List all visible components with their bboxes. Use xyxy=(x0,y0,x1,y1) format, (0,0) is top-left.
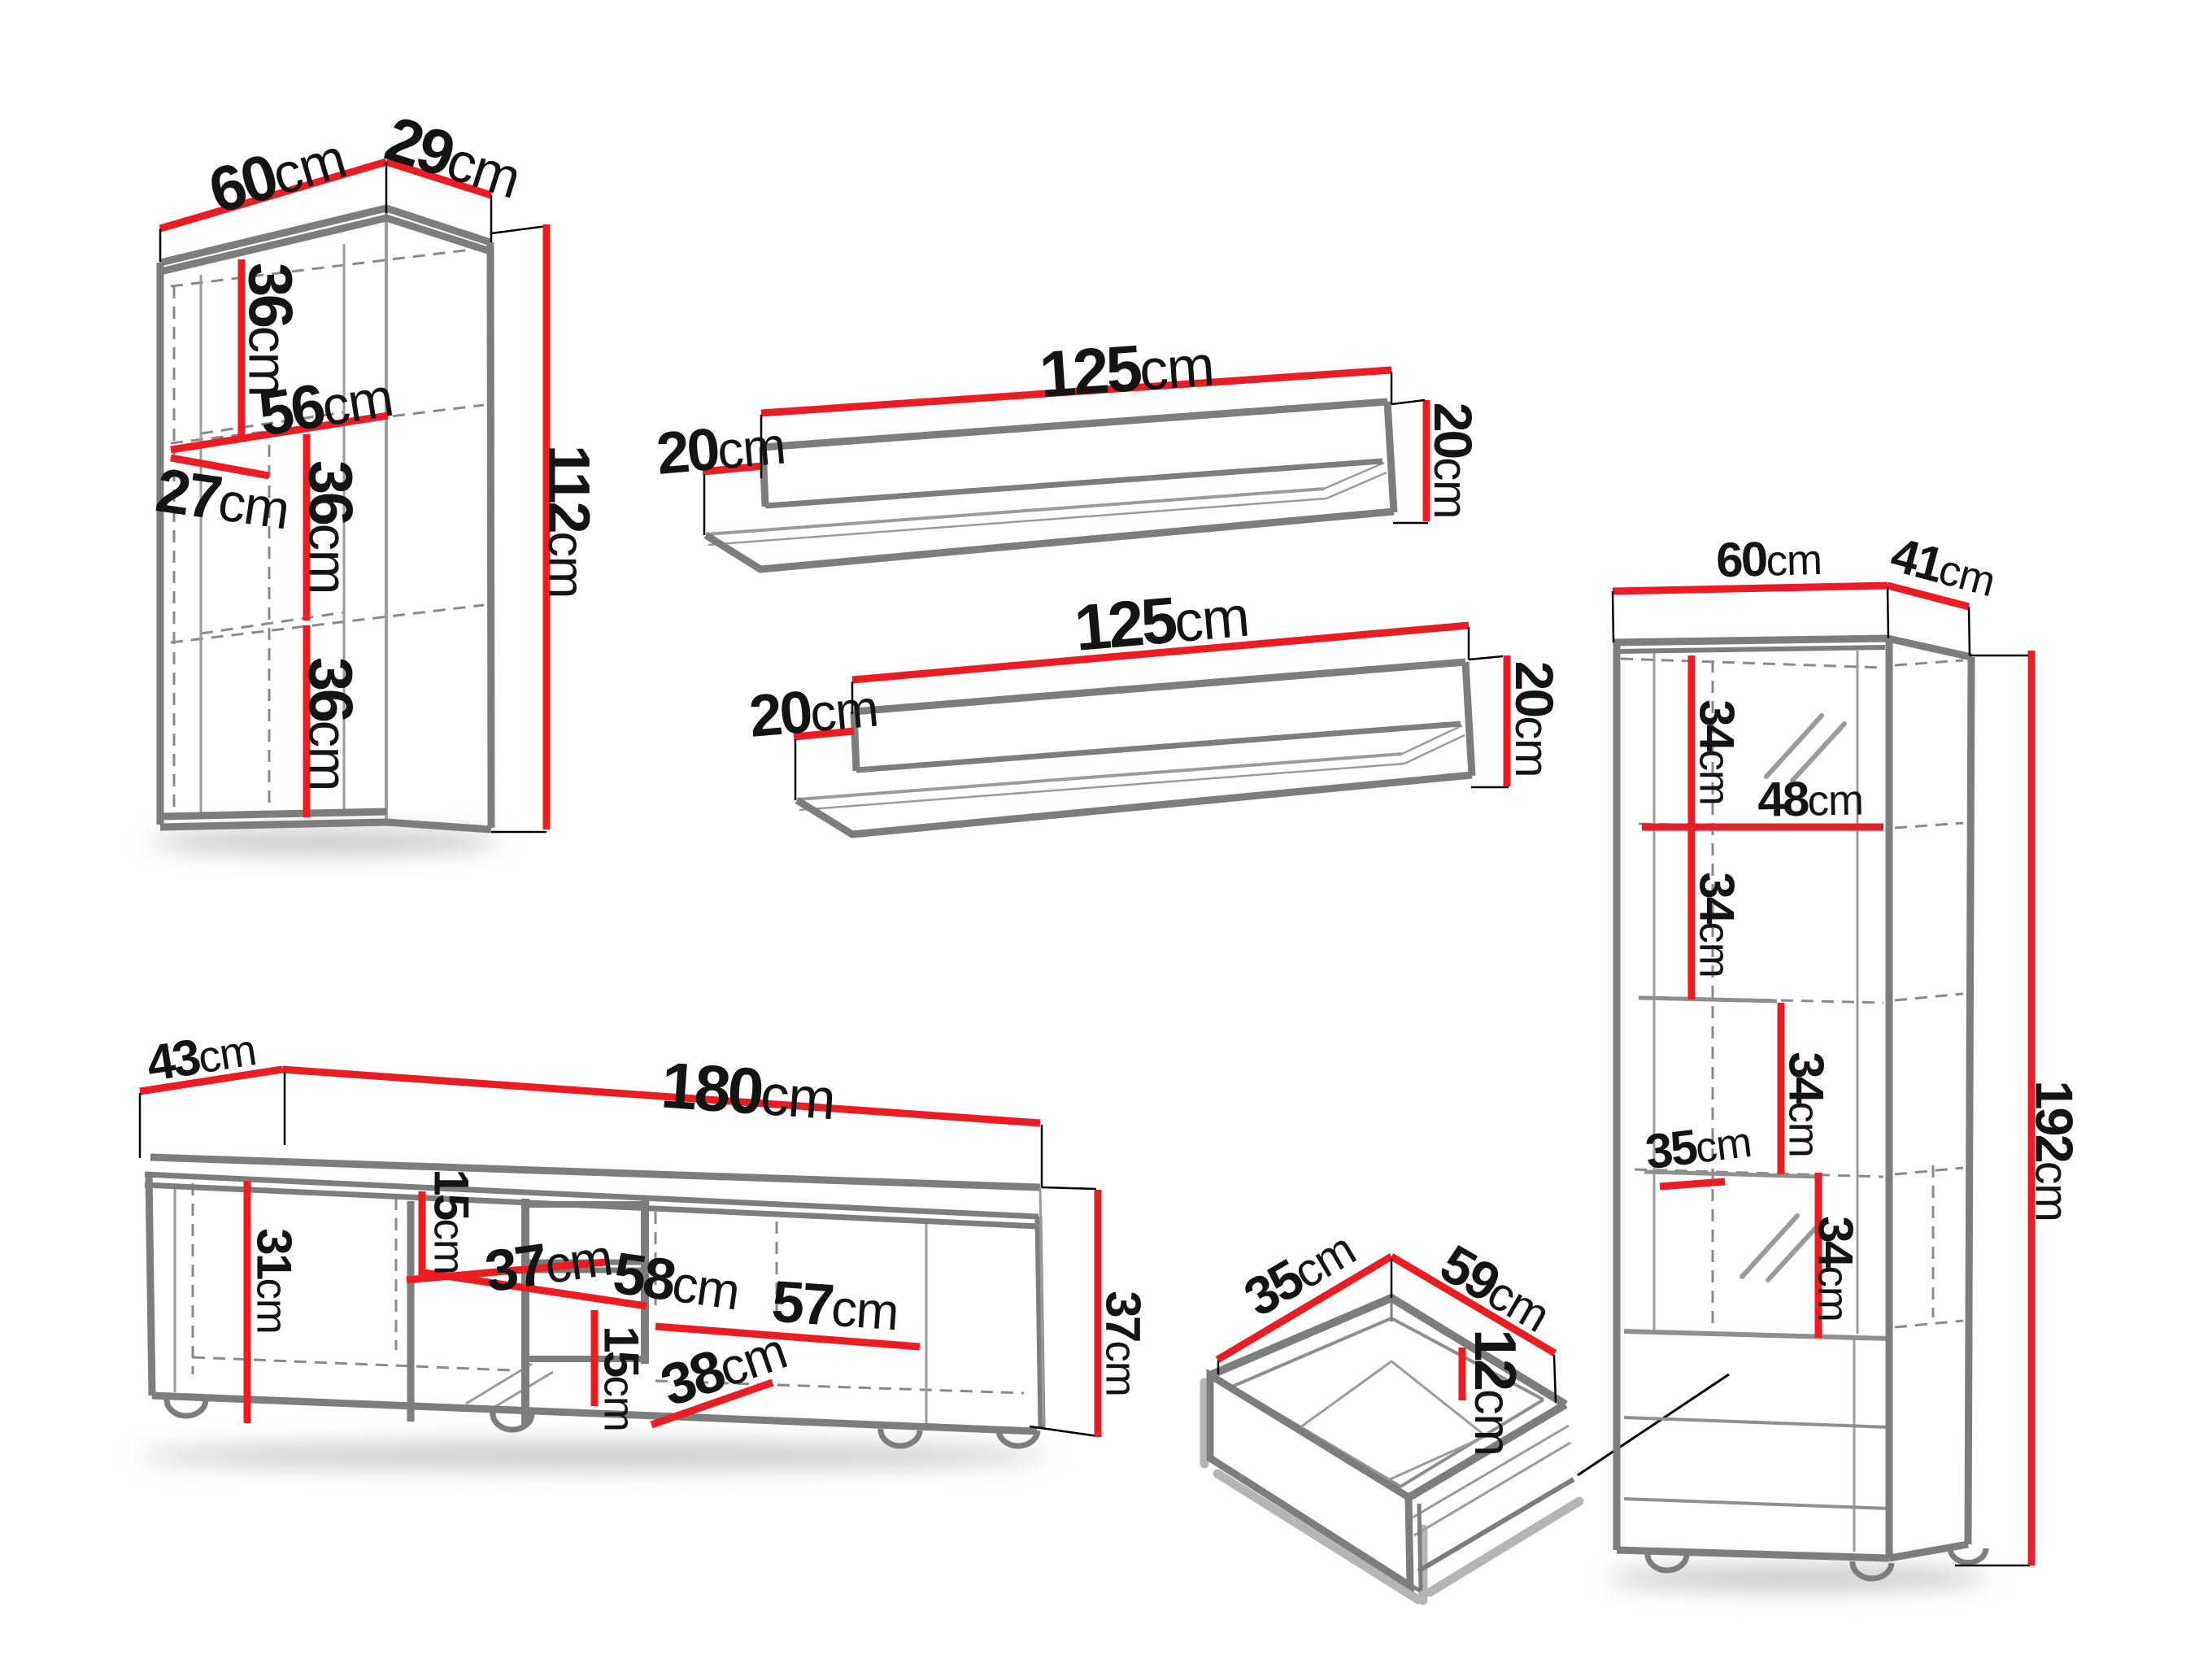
svg-text:125cm: 125cm xyxy=(1037,326,1215,411)
svg-text:34cm: 34cm xyxy=(1689,699,1744,805)
svg-text:37cm: 37cm xyxy=(1095,1291,1150,1396)
svg-text:60cm: 60cm xyxy=(1715,530,1822,587)
svg-text:20cm: 20cm xyxy=(1423,403,1483,519)
svg-text:15cm: 15cm xyxy=(594,1326,648,1431)
svg-text:34cm: 34cm xyxy=(1689,872,1744,978)
svg-text:48cm: 48cm xyxy=(1757,770,1864,826)
svg-text:112cm: 112cm xyxy=(536,445,601,598)
svg-text:15cm: 15cm xyxy=(424,1169,478,1274)
svg-text:31cm: 31cm xyxy=(246,1228,301,1334)
svg-text:20cm: 20cm xyxy=(747,673,880,750)
svg-text:20cm: 20cm xyxy=(1504,661,1565,777)
svg-text:36cm: 36cm xyxy=(296,460,365,594)
svg-text:12cm: 12cm xyxy=(1462,1329,1527,1456)
svg-text:36cm: 36cm xyxy=(296,657,365,790)
svg-text:20cm: 20cm xyxy=(654,411,787,487)
svg-text:34cm: 34cm xyxy=(1779,1052,1833,1157)
svg-text:192cm: 192cm xyxy=(2025,1080,2084,1221)
svg-text:34cm: 34cm xyxy=(1808,1216,1862,1322)
